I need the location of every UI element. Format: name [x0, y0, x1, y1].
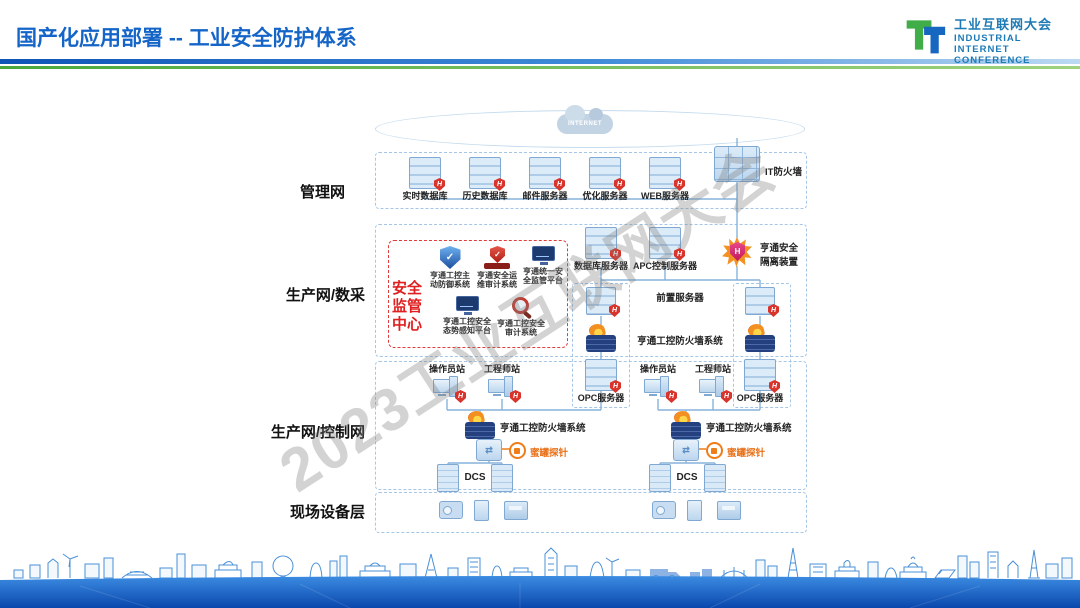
server-icon: H	[744, 359, 776, 391]
engineer-station-node-left: 工程师站 H	[472, 364, 532, 400]
sec-item-label: 亨通工控主动防御系统	[429, 271, 471, 289]
workstation-label: 操作员站	[640, 364, 676, 374]
plc-icon	[504, 501, 528, 520]
red-shield-pedestal-icon: ✓	[484, 246, 510, 269]
firewall-icon	[586, 325, 616, 352]
workstation-icon: H	[488, 376, 516, 400]
front-server-label: 前置服务器	[630, 290, 730, 304]
workstation-icon: H	[433, 376, 461, 400]
server-label: APC控制服务器	[633, 261, 697, 271]
server-icon: H	[409, 157, 441, 189]
sec-item-audit-sys: 亨通工控安全审计系统	[496, 296, 546, 337]
server-node-history-db: H 历史数据库	[455, 157, 515, 201]
server-icon: H	[529, 157, 561, 189]
field-device-camera	[440, 501, 462, 519]
monitor-icon	[532, 246, 555, 265]
field-device-box	[688, 500, 701, 521]
it-firewall-node	[715, 146, 759, 182]
conference-logo-en3: CONFERENCE	[954, 55, 1052, 66]
server-node-web: H WEB服务器	[635, 157, 695, 201]
dcs-label-right: DCS	[671, 472, 703, 483]
server-label: OPC服务器	[737, 393, 784, 403]
sec-item-label: 亨通工控安全态势感知平台	[442, 317, 492, 335]
field-device-camera	[653, 501, 675, 519]
front-server-node-right: H	[732, 287, 788, 315]
isolation-device-label: 亨通安全隔离装置	[760, 240, 800, 268]
server-icon: H	[585, 359, 617, 391]
security-center-title: 安全监管中心	[392, 280, 424, 334]
firewall-icon	[465, 412, 495, 439]
apc-server-node: H APC控制服务器	[628, 227, 702, 271]
field-device-plc	[505, 501, 527, 520]
sec-item-audit-ops: ✓ 亨通安全运维审计系统	[476, 246, 518, 289]
workstation-label: 操作员站	[429, 364, 465, 374]
server-label: 邮件服务器	[522, 191, 567, 201]
sec-item-situation: 亨通工控安全态势感知平台	[442, 296, 492, 335]
sec-item-label: 亨通安全运维审计系统	[476, 271, 518, 289]
shield-badge-icon: H	[554, 178, 565, 191]
field-device-plc	[718, 501, 740, 520]
shield-badge-icon: H	[674, 178, 685, 191]
shield-badge-icon: H	[610, 248, 621, 261]
firewall-node-ctrl-left	[465, 412, 495, 439]
internet-cloud-icon: INTERNET	[557, 114, 613, 134]
layer-label-production: 生产网/数采	[230, 284, 365, 305]
shield-badge-icon: H	[434, 178, 445, 191]
opc-server-node-left: H OPC服务器	[573, 359, 629, 403]
switch-node-left: ⇄	[477, 439, 501, 461]
server-node-mail: H 邮件服务器	[515, 157, 575, 201]
sec-item-label: 亨通统一安全监管平台	[522, 267, 564, 285]
honeypot-node-right	[707, 442, 721, 459]
shield-badge-icon: H	[494, 178, 505, 191]
layer-label-control: 生产网/控制网	[215, 421, 365, 442]
sec-item-defense: ✓ 亨通工控主动防御系统	[429, 246, 471, 289]
dcs-label-left: DCS	[459, 472, 491, 483]
honeypot-probe-icon	[706, 442, 723, 459]
firewall-icon	[671, 412, 701, 439]
shield-badge-icon: H	[610, 380, 621, 393]
instrument-icon	[439, 501, 463, 519]
server-icon: H	[649, 227, 681, 259]
switch-icon: ⇄	[476, 439, 502, 461]
device-icon	[687, 500, 702, 521]
field-device-box	[475, 500, 488, 521]
firewall-icon	[745, 325, 775, 352]
server-icon: H	[649, 157, 681, 189]
database-server-node: H 数据库服务器	[569, 227, 633, 271]
honeypot-node-left	[510, 442, 524, 459]
monitor-icon	[456, 296, 479, 315]
conference-logo-cn: 工业互联网大会	[954, 14, 1052, 33]
server-icon: H	[589, 157, 621, 189]
firewall-node-prod-left	[586, 325, 616, 352]
plc-icon	[717, 501, 741, 520]
server-icon: H	[585, 227, 617, 259]
audit-magnifier-icon	[511, 296, 532, 317]
it-firewall-icon	[714, 146, 760, 182]
dcs-cabinet	[650, 464, 670, 492]
operator-station-node-right: 操作员站 H	[628, 364, 688, 400]
server-node-realtime-db: H 实时数据库	[395, 157, 455, 201]
sec-item-platform: 亨通统一安全监管平台	[522, 246, 564, 285]
isolation-device-node: H	[722, 237, 752, 267]
server-node-optimization: H 优化服务器	[575, 157, 635, 201]
conference-logo-icon	[903, 14, 947, 56]
firewall-node-prod-right	[745, 325, 775, 352]
city-skyline	[0, 528, 1080, 608]
shield-badge-icon: H	[769, 380, 780, 393]
switch-icon: ⇄	[673, 439, 699, 461]
server-label: 数据库服务器	[574, 261, 628, 271]
honeypot-label-left: 蜜罐探针	[530, 445, 590, 459]
cabinet-icon	[704, 464, 726, 492]
dcs-cabinet	[438, 464, 458, 492]
workstation-label: 工程师站	[695, 364, 731, 374]
server-icon: H	[469, 157, 501, 189]
sec-item-label: 亨通工控安全审计系统	[496, 319, 546, 337]
cabinet-icon	[491, 464, 513, 492]
honeypot-label-right: 蜜罐探针	[727, 445, 787, 459]
firewall-node-ctrl-right	[671, 412, 701, 439]
dcs-cabinet	[492, 464, 512, 492]
server-label: OPC服务器	[578, 393, 625, 403]
header-divider-green	[0, 66, 1080, 69]
server-label: 实时数据库	[402, 191, 447, 201]
layer-label-management: 管理网	[235, 181, 345, 202]
honeypot-probe-icon	[509, 442, 526, 459]
server-icon: H	[586, 287, 616, 315]
operator-station-node-left: 操作员站 H	[417, 364, 477, 400]
ctrl-firewall-system-label-right: 亨通工控防火墙系统	[706, 420, 816, 434]
workstation-icon: H	[699, 376, 727, 400]
conference-logo-en1: INDUSTRIAL	[954, 33, 1052, 44]
switch-node-right: ⇄	[674, 439, 698, 461]
ctrl-firewall-system-label-left: 亨通工控防火墙系统	[500, 420, 610, 434]
dcs-cabinet	[705, 464, 725, 492]
server-label: 历史数据库	[462, 191, 507, 201]
server-label: 优化服务器	[582, 191, 627, 201]
page-title: 国产化应用部署 -- 工业安全防护体系	[16, 22, 357, 52]
cabinet-icon	[649, 464, 671, 492]
prod-firewall-system-label: 亨通工控防火墙系统	[628, 333, 732, 347]
front-server-node-left: H	[573, 287, 629, 315]
server-icon: H	[745, 287, 775, 315]
server-label: WEB服务器	[641, 191, 689, 201]
isolation-device-icon: H	[722, 237, 752, 267]
device-icon	[474, 500, 489, 521]
layer-label-field: 现场设备层	[230, 501, 365, 522]
shield-badge-icon: H	[674, 248, 685, 261]
engineer-station-node-right: 工程师站 H	[683, 364, 743, 400]
workstation-icon: H	[644, 376, 672, 400]
instrument-icon	[652, 501, 676, 519]
shield-badge-icon: H	[614, 178, 625, 191]
blue-shield-icon: ✓	[440, 246, 461, 269]
conference-logo-en2: INTERNET	[954, 44, 1052, 55]
conference-logo: 工业互联网大会 INDUSTRIAL INTERNET CONFERENCE	[903, 14, 1052, 66]
workstation-label: 工程师站	[484, 364, 520, 374]
it-firewall-label: IT防火墙	[765, 164, 815, 178]
cabinet-icon	[437, 464, 459, 492]
